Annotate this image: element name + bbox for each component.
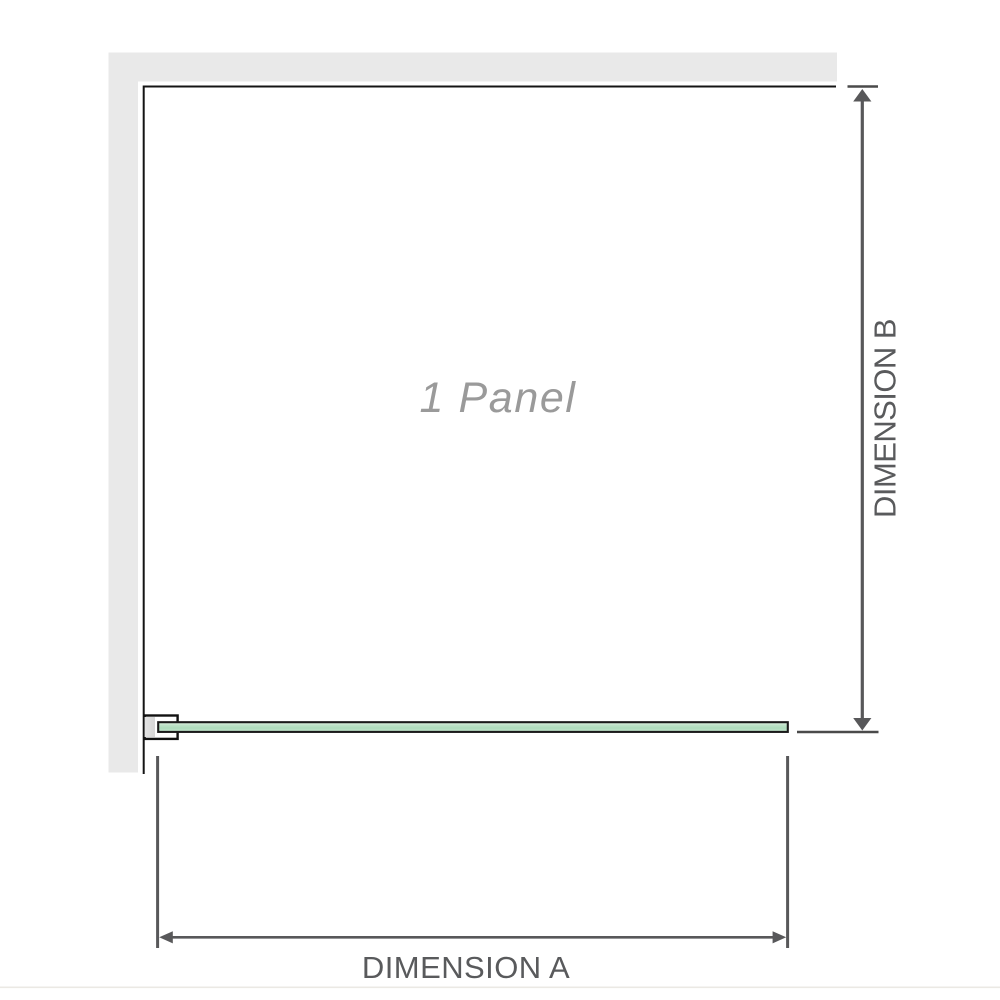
svg-text:DIMENSION B: DIMENSION B [868,319,903,518]
svg-text:1 Panel: 1 Panel [419,374,576,422]
svg-text:DIMENSION A: DIMENSION A [362,950,570,985]
